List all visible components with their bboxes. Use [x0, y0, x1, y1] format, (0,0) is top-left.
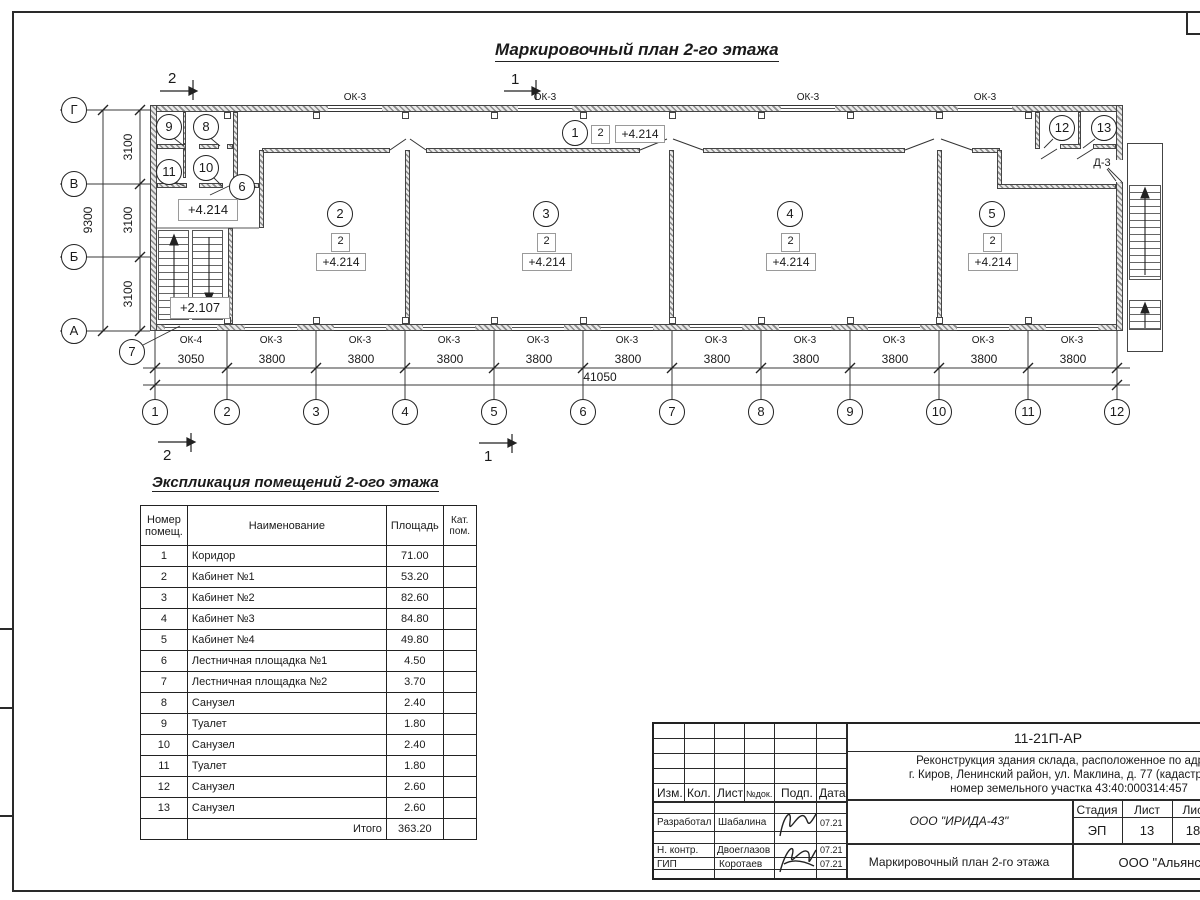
cell-num: 10: [141, 735, 188, 756]
cell-area: 53.20: [386, 567, 443, 588]
cell-cat: [443, 546, 476, 567]
room-circle: 1: [562, 120, 588, 146]
cell-cat: [443, 630, 476, 651]
cell-cat: [443, 693, 476, 714]
cell-num: 1: [141, 546, 188, 567]
cell-name: Коридор: [187, 546, 386, 567]
col-header-area: Площадь: [386, 506, 443, 546]
cell-name: Санузел: [187, 777, 386, 798]
level-mark: +4.214: [316, 253, 366, 271]
grid-row: В: [61, 171, 87, 197]
tb-line: [654, 753, 846, 754]
room-circle: 13: [1091, 115, 1117, 141]
tb-project-line2: г. Киров, Ленинский район, ул. Маклина, …: [846, 769, 1200, 781]
dimension: 3050: [161, 352, 221, 366]
cell-name: Кабинет №2: [187, 588, 386, 609]
cell-name: Санузел: [187, 735, 386, 756]
cell-area: 1.80: [386, 714, 443, 735]
level-mark: +2.107: [170, 297, 230, 319]
window-label: ОК-3: [424, 335, 474, 346]
dimension: 3800: [1043, 352, 1103, 366]
cell-num: 3: [141, 588, 188, 609]
drawing-sheet: Маркировочный план 2-го этажа: [0, 0, 1200, 900]
room-circle: 8: [193, 114, 219, 140]
tb-sheet-value: 13: [1122, 823, 1172, 838]
cell-name: Кабинет №4: [187, 630, 386, 651]
grid-column: 8: [748, 399, 774, 425]
tb-line: [654, 738, 846, 739]
dimension: 3800: [865, 352, 925, 366]
cell-area: 82.60: [386, 588, 443, 609]
category-box: 2: [331, 233, 350, 252]
col-header-num: Номер помещ.: [141, 506, 188, 546]
dimension: 3800: [331, 352, 391, 366]
tb-person-role: Н. контр.: [657, 845, 698, 856]
window-label: ОК-3: [246, 335, 296, 346]
cell-cat: [443, 588, 476, 609]
cell-area: 4.50: [386, 651, 443, 672]
tb-line: [846, 751, 1200, 752]
room-circle: 6: [229, 174, 255, 200]
title-block: Изм. Кол. Лист №док. Подп. Дата Разработ…: [652, 722, 1200, 880]
grid-row: А: [61, 318, 87, 344]
room-circle: 7: [119, 339, 145, 365]
cell-name: Кабинет №3: [187, 609, 386, 630]
dimension: 3800: [420, 352, 480, 366]
grid-column: 11: [1015, 399, 1041, 425]
grid-column: 4: [392, 399, 418, 425]
total-label: Итого: [187, 819, 386, 840]
cell-num: 11: [141, 756, 188, 777]
tb-person-role: Разработал: [657, 817, 711, 828]
explication-table: Номер помещ. Наименование Площадь Кат. п…: [140, 505, 477, 840]
signature: [776, 838, 820, 878]
cell-area: 2.40: [386, 735, 443, 756]
cell-num: 7: [141, 672, 188, 693]
tb-line: [846, 843, 1200, 845]
dimension: 3800: [954, 352, 1014, 366]
tb-doc-code: 11-21П-АР: [846, 730, 1200, 746]
col-header-cat: Кат. пом.: [443, 506, 476, 546]
tb-col-label: Дата: [819, 786, 846, 800]
cell-cat: [443, 651, 476, 672]
window-label: ОК-3: [602, 335, 652, 346]
tb-line: [846, 799, 1200, 801]
window-label: ОК-3: [513, 335, 563, 346]
cell-cat: [443, 735, 476, 756]
dimension-total: 41050: [560, 370, 640, 384]
cell-cat: [443, 756, 476, 777]
cell-num: 13: [141, 798, 188, 819]
cell-cat: [443, 798, 476, 819]
tb-person-date: 07.21: [820, 845, 843, 855]
window-label: ОК-3: [335, 335, 385, 346]
door-label: Д-3: [1086, 157, 1118, 169]
dimension: 3100: [121, 200, 135, 240]
category-box: 2: [537, 233, 556, 252]
signature: [776, 806, 820, 842]
dimension: 3800: [598, 352, 658, 366]
dimension: 3800: [687, 352, 747, 366]
room-circle: 2: [327, 201, 353, 227]
cell-num: 2: [141, 567, 188, 588]
grid-column: 10: [926, 399, 952, 425]
tb-line: [654, 801, 846, 803]
cell-name: Санузел: [187, 798, 386, 819]
tb-person-name: Шабалина: [718, 817, 766, 828]
cell-cat: [443, 714, 476, 735]
cell-name: Лестничная площадка №1: [187, 651, 386, 672]
grid-column: 3: [303, 399, 329, 425]
tb-col-label: Лист: [717, 786, 743, 800]
tb-line: [654, 768, 846, 769]
cell-area: 84.80: [386, 609, 443, 630]
section-marker: 1: [484, 448, 492, 465]
cell-num: 9: [141, 714, 188, 735]
window-label: ОК-3: [960, 92, 1010, 103]
room-circle: 4: [777, 201, 803, 227]
tb-line: [744, 724, 745, 802]
tb-project-line3: номер земельного участка 43:40:000314:45…: [846, 783, 1200, 795]
level-mark: +4.214: [615, 125, 665, 143]
cell-name: Санузел: [187, 693, 386, 714]
door-leaves: [390, 139, 1116, 181]
total-value: 363.20: [386, 819, 443, 840]
table-title: Экспликация помещений 2-ого этажа: [152, 474, 439, 492]
category-box: 2: [983, 233, 1002, 252]
tb-project-line1: Реконструкция здания склада, расположенн…: [846, 755, 1200, 767]
window-label: ОК-3: [691, 335, 741, 346]
grid-column: 2: [214, 399, 240, 425]
dimension: 3800: [509, 352, 569, 366]
dimension: 3100: [121, 274, 135, 314]
tb-person-role: ГИП: [657, 859, 677, 870]
level-mark: +4.214: [766, 253, 816, 271]
grid-column: 9: [837, 399, 863, 425]
tb-line: [684, 724, 685, 802]
cell-num: 8: [141, 693, 188, 714]
room-circle: 10: [193, 155, 219, 181]
cell-cat: [443, 777, 476, 798]
cell-area: 1.80: [386, 756, 443, 777]
grid-column: 12: [1104, 399, 1130, 425]
cell-cat: [443, 672, 476, 693]
grid-column: 6: [570, 399, 596, 425]
tb-company: ООО "Альянс": [1072, 855, 1200, 870]
col-header-name: Наименование: [187, 506, 386, 546]
cell-cat: [443, 819, 476, 840]
dimension-total: 9300: [81, 200, 95, 240]
level-mark: +4.214: [178, 199, 238, 221]
tb-col-label: Кол.: [687, 786, 711, 800]
cell-name: Туалет: [187, 756, 386, 777]
grid-column: 7: [659, 399, 685, 425]
cell-num: 6: [141, 651, 188, 672]
tb-line: [1072, 817, 1200, 818]
tb-person-name: Коротаев: [719, 859, 762, 870]
tb-sheets-value: 18: [1172, 823, 1200, 838]
cell-cat: [443, 567, 476, 588]
section-marker: 2: [163, 447, 171, 464]
grid-column: 5: [481, 399, 507, 425]
window-label: ОК-3: [958, 335, 1008, 346]
tb-sheets-header: Листов: [1172, 803, 1200, 817]
cell-name: Кабинет №1: [187, 567, 386, 588]
cell-num: 12: [141, 777, 188, 798]
tb-org: ООО "ИРИДА-43": [846, 814, 1072, 828]
category-box: 2: [591, 125, 610, 144]
dim-ticks: [98, 105, 1122, 390]
section-marker: 2: [168, 70, 176, 87]
grid-row: Б: [61, 244, 87, 270]
cell-name: Лестничная площадка №2: [187, 672, 386, 693]
window-label: ОК-3: [330, 92, 380, 103]
level-mark: +4.214: [968, 253, 1018, 271]
tb-line: [654, 783, 846, 784]
cell-num: 4: [141, 609, 188, 630]
cell-name: Туалет: [187, 714, 386, 735]
tb-stage-header: Стадия: [1072, 803, 1122, 817]
window-label: ОК-3: [783, 92, 833, 103]
dimension: 3100: [121, 127, 135, 167]
cell-area: 2.60: [386, 777, 443, 798]
cell-cat: [443, 609, 476, 630]
window-label: ОК-3: [1047, 335, 1097, 346]
grid-row: Г: [61, 97, 87, 123]
cell-num: 5: [141, 630, 188, 651]
category-box: 2: [781, 233, 800, 252]
cell-area: 2.40: [386, 693, 443, 714]
tb-sheet-header: Лист: [1122, 803, 1172, 817]
window-label: ОК-3: [520, 92, 570, 103]
room-circle: 12: [1049, 115, 1075, 141]
cell-area: 71.00: [386, 546, 443, 567]
leader-lines: [143, 136, 1122, 345]
tb-col-label: Подп.: [781, 786, 813, 800]
tb-col-label: №док.: [746, 789, 772, 799]
dimension: 3800: [776, 352, 836, 366]
total-spacer: [141, 819, 188, 840]
window-label: ОК-3: [869, 335, 919, 346]
room-circle: 5: [979, 201, 1005, 227]
window-label: ОК-3: [780, 335, 830, 346]
tb-doc-title: Маркировочный план 2-го этажа: [846, 855, 1072, 869]
section-marker: 1: [511, 71, 519, 88]
cell-area: 3.70: [386, 672, 443, 693]
cell-area: 2.60: [386, 798, 443, 819]
room-circle: 11: [156, 159, 182, 185]
grid-column: 1: [142, 399, 168, 425]
level-mark: +4.214: [522, 253, 572, 271]
tb-col-label: Изм.: [657, 786, 683, 800]
window-label: ОК-4: [166, 335, 216, 346]
tb-stage-value: ЭП: [1072, 823, 1122, 838]
tb-person-name: Двоеглазов: [717, 845, 770, 856]
room-circle: 9: [156, 114, 182, 140]
tb-person-date: 07.21: [820, 859, 843, 869]
dimension: 3800: [242, 352, 302, 366]
room-circle: 3: [533, 201, 559, 227]
tb-person-date: 07.21: [820, 818, 843, 828]
cell-area: 49.80: [386, 630, 443, 651]
